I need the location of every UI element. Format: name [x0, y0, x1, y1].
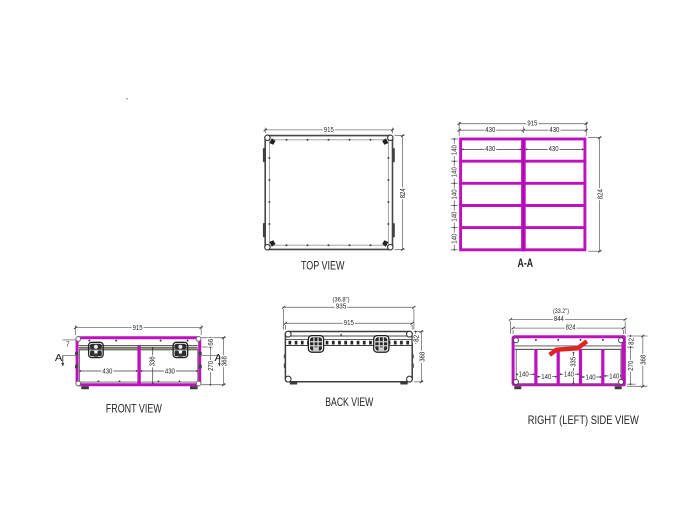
svg-text:935: 935 [336, 302, 347, 311]
svg-text:7: 7 [66, 340, 70, 349]
svg-text:140: 140 [586, 372, 596, 381]
svg-text:335: 335 [568, 357, 577, 367]
svg-text:140: 140 [609, 371, 619, 380]
svg-text:824: 824 [398, 188, 407, 198]
svg-text:368: 368 [417, 352, 426, 362]
svg-text:430: 430 [102, 366, 112, 375]
svg-text:82: 82 [412, 335, 421, 342]
svg-text:430: 430 [485, 144, 495, 153]
svg-text:270: 270 [626, 361, 635, 371]
svg-text:FRONT VIEW: FRONT VIEW [106, 402, 163, 416]
svg-text:66: 66 [206, 339, 215, 346]
svg-text:140: 140 [541, 372, 551, 381]
svg-text:A-A: A-A [518, 256, 534, 270]
svg-text:430: 430 [485, 125, 495, 134]
svg-text:915: 915 [527, 118, 537, 127]
svg-text:430: 430 [549, 144, 559, 153]
svg-text:A: A [55, 352, 63, 364]
svg-text:140: 140 [450, 189, 459, 199]
svg-text:140: 140 [519, 370, 529, 379]
svg-text:TOP VIEW: TOP VIEW [301, 258, 345, 272]
svg-text:82: 82 [626, 338, 635, 345]
svg-text:915: 915 [324, 125, 334, 134]
svg-text:915: 915 [133, 323, 143, 332]
svg-text:BACK VIEW: BACK VIEW [325, 395, 374, 409]
svg-text:844: 844 [554, 314, 564, 323]
svg-text:270: 270 [206, 361, 215, 371]
svg-text:RIGHT (LEFT) SIDE VIEW: RIGHT (LEFT) SIDE VIEW [528, 413, 640, 427]
svg-text:430: 430 [165, 366, 175, 375]
svg-text:368: 368 [219, 356, 228, 366]
svg-text:915: 915 [344, 318, 354, 327]
svg-text:336: 336 [148, 356, 157, 366]
svg-text:140: 140 [450, 212, 459, 222]
svg-text:140: 140 [450, 145, 459, 155]
svg-text:140: 140 [564, 370, 574, 379]
svg-text:140: 140 [450, 234, 459, 244]
svg-text:140: 140 [450, 167, 459, 177]
svg-text:824: 824 [595, 189, 604, 199]
svg-text:824: 824 [566, 323, 576, 332]
svg-text:430: 430 [549, 125, 559, 134]
svg-text:368: 368 [639, 355, 648, 365]
